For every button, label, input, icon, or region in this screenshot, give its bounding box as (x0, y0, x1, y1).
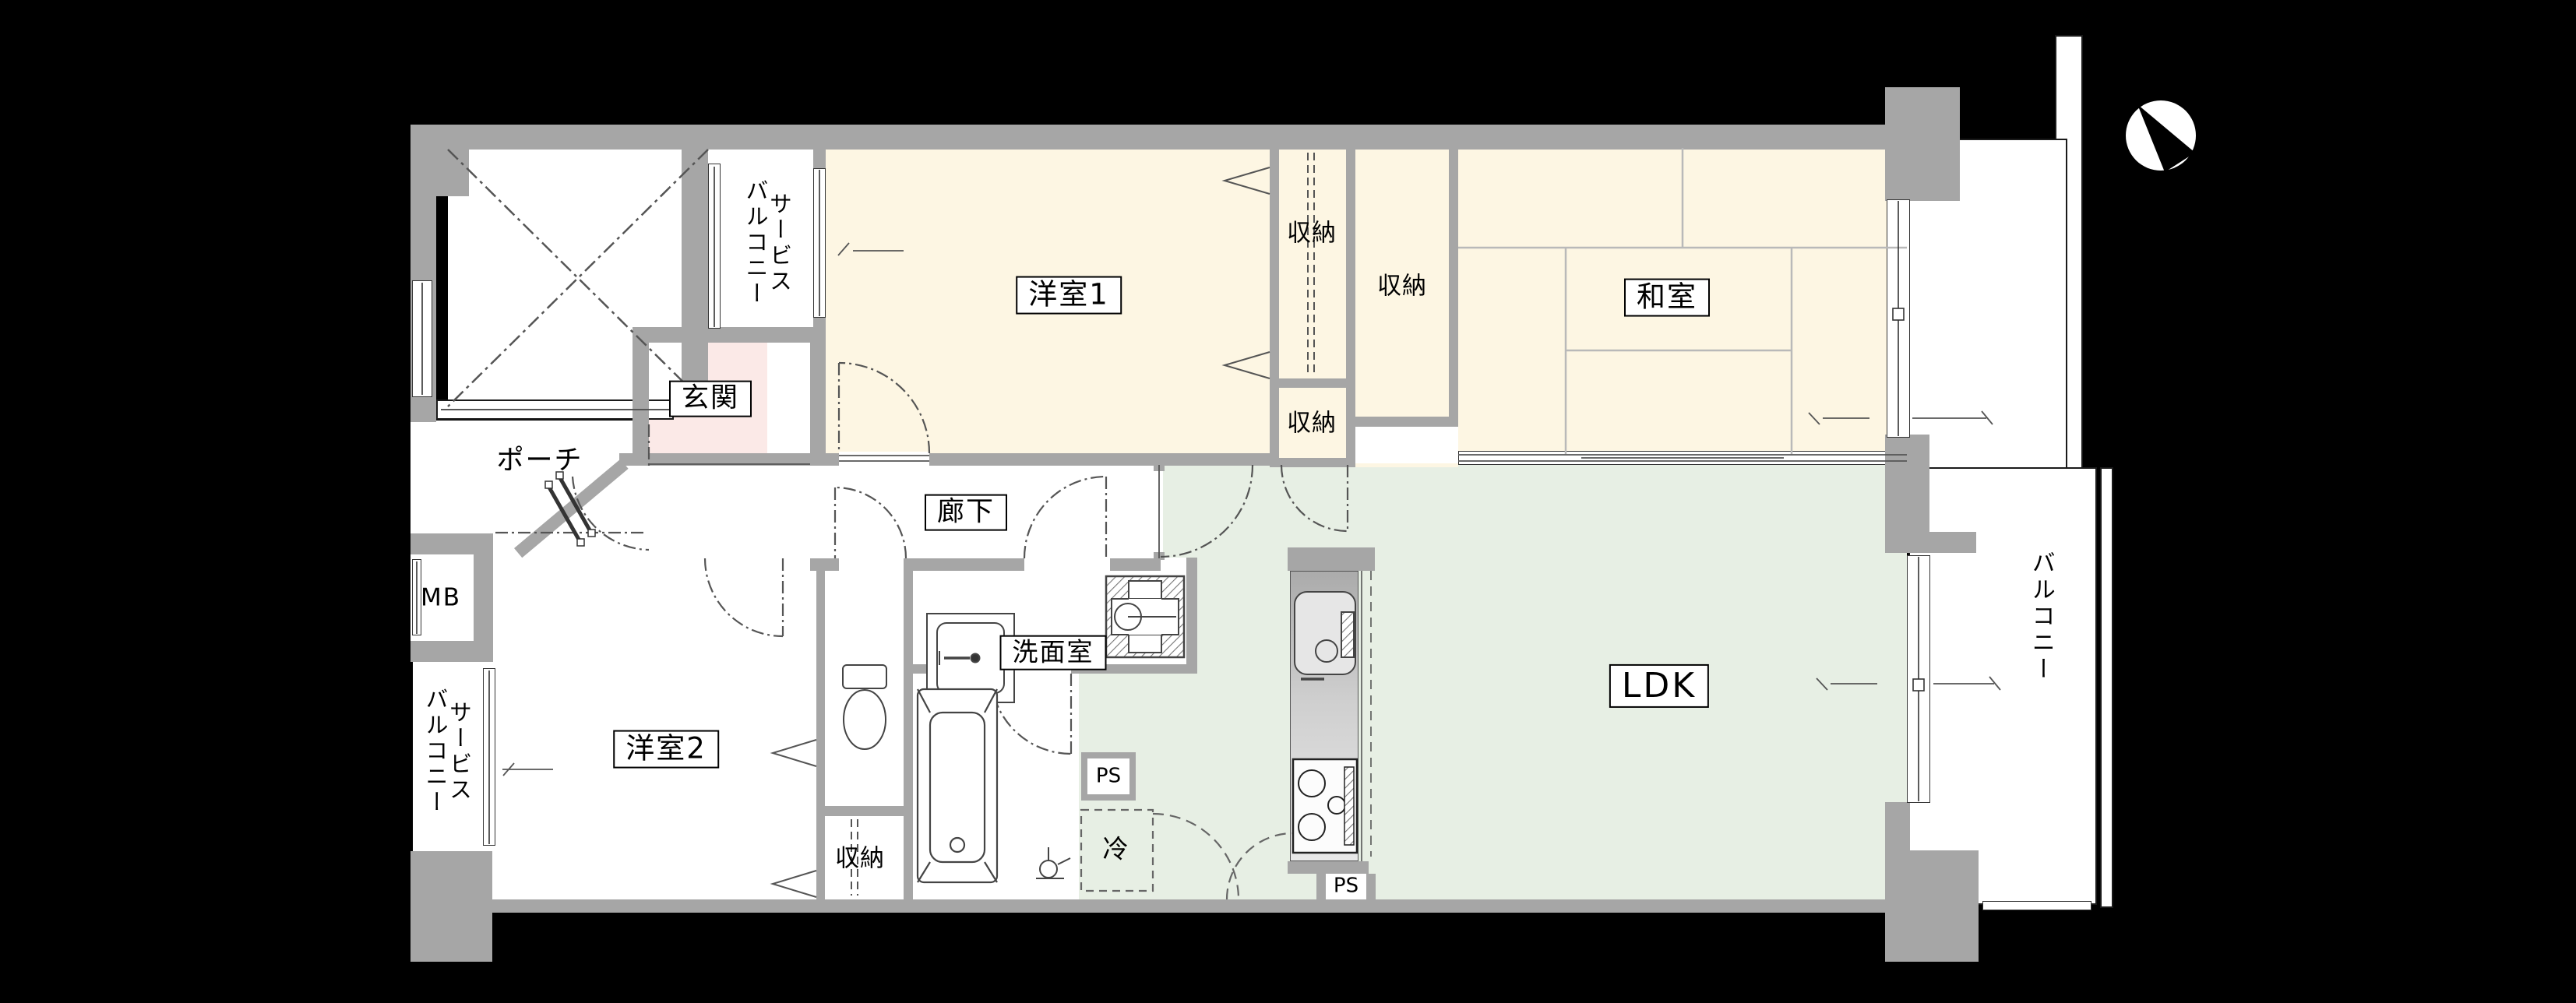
label-mb: MB (421, 586, 461, 611)
label-storage-w1-top: 収納 (1287, 221, 1337, 247)
label-storage-w2: 収納 (835, 846, 885, 872)
label-ldk: LDK (1609, 664, 1709, 708)
dimension-ticks (502, 243, 2000, 776)
label-service-balcony-north: サービス バルコニー (744, 179, 791, 308)
sliding-track-lines (649, 455, 1907, 558)
front-door-icon (545, 472, 595, 546)
label-service-balcony-west: サービス バルコニー (424, 688, 471, 816)
label-western1: 洋室1 (1016, 276, 1122, 315)
north-logo-icon (2126, 100, 2196, 172)
label-corridor: 廊下 (925, 494, 1007, 531)
floor-plan: 洋室1 和室 玄関 廊下 洗面室 洋室2 LDK ポーチ MB 収納 収納 収納… (0, 0, 2576, 1003)
label-genkan: 玄関 (669, 381, 752, 417)
label-ps-lower: PS (1334, 875, 1358, 896)
label-porch: ポーチ (496, 447, 583, 476)
label-ps-upper: PS (1096, 765, 1121, 787)
kitchen-counter-lines (1362, 571, 1371, 861)
kitchen-sink-icon (1295, 592, 1355, 679)
label-storage-w1-small: 収納 (1287, 411, 1337, 437)
label-storage-japanese: 収納 (1377, 274, 1427, 300)
label-refrigerator: 冷 (1103, 836, 1130, 864)
linework-overlay (0, 0, 2576, 1003)
kitchen-stove-icon (1293, 759, 1357, 853)
bathtub-icon (918, 689, 997, 882)
washer-pan-icon (1106, 576, 1184, 657)
shower-icon (1036, 847, 1070, 878)
void-x-mark (448, 150, 708, 406)
label-balcony: バルコニー (2028, 551, 2053, 683)
label-japanese: 和室 (1624, 279, 1710, 317)
toilet-icon (843, 665, 886, 749)
label-western2: 洋室2 (613, 730, 719, 769)
door-arcs (705, 363, 1348, 754)
label-washroom: 洗面室 (1000, 635, 1107, 670)
